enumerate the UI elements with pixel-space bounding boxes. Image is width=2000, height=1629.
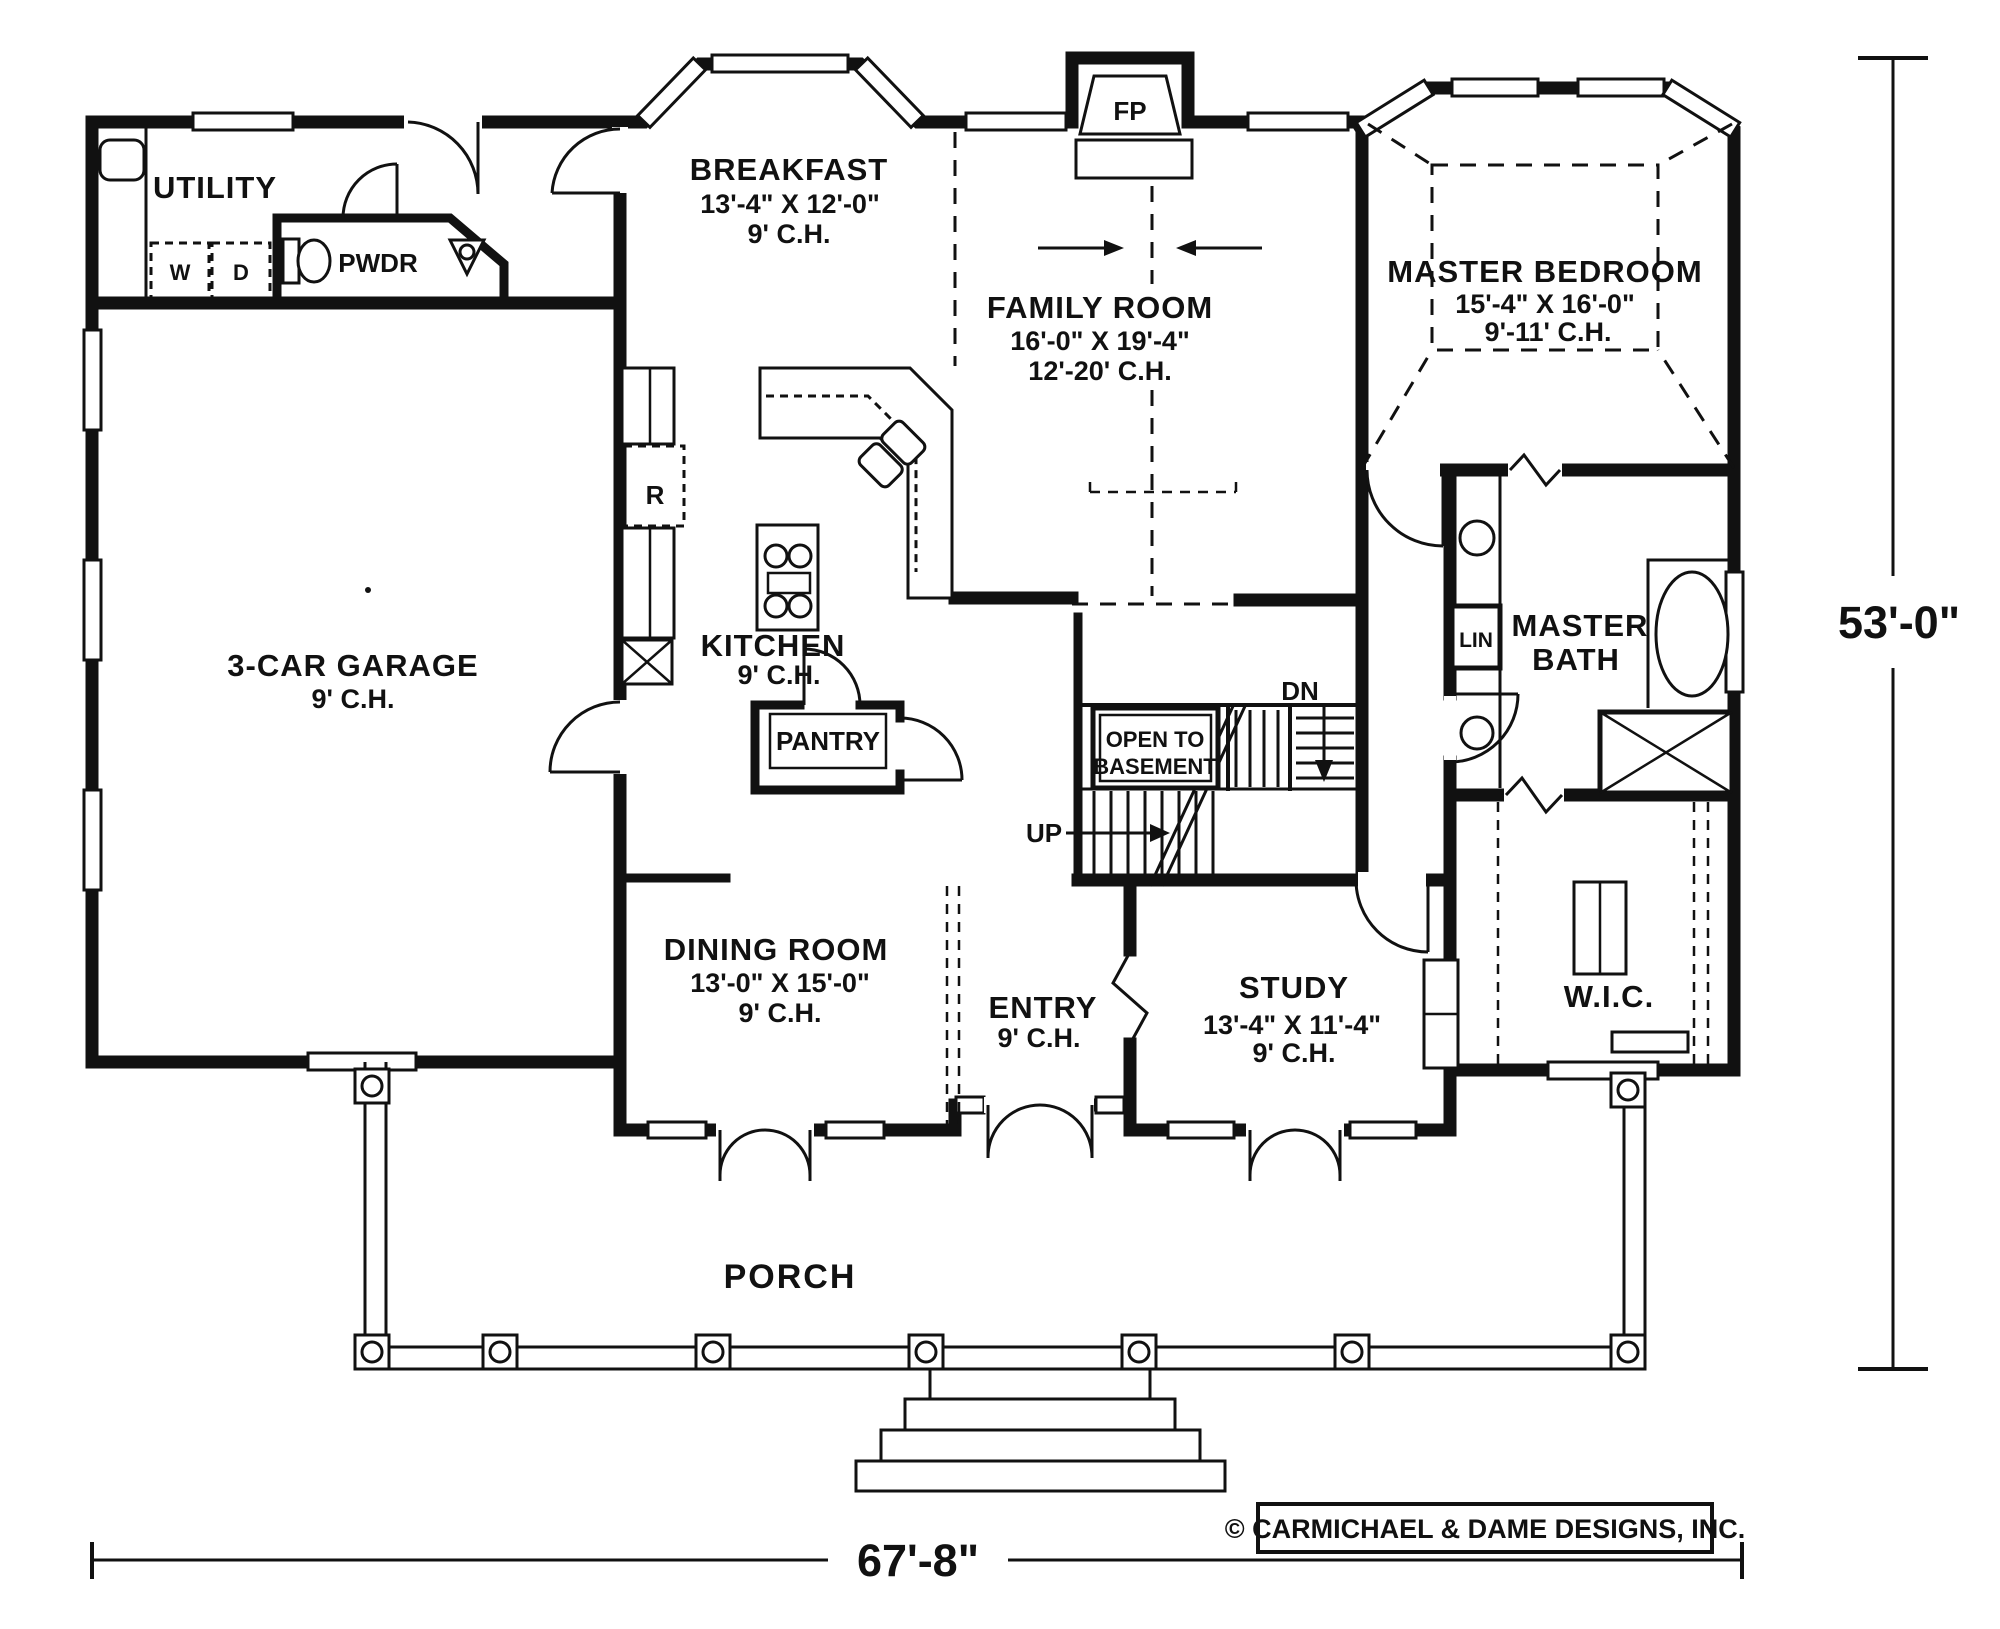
laundry-sink [100, 140, 144, 180]
dining-room-label: DINING ROOM [664, 932, 889, 967]
floor-plan-page: FP [0, 0, 2000, 1629]
window [1248, 113, 1348, 130]
open-to-basement-label: OPEN TO [1106, 727, 1205, 752]
door-garage [550, 702, 620, 772]
ceiling-slope-arrows [1038, 240, 1262, 256]
garage-ceiling: 9' C.H. [312, 684, 395, 714]
window [1663, 80, 1740, 137]
ceiling-break-dashed [1090, 478, 1236, 492]
door-hall [900, 718, 962, 780]
window [826, 1122, 884, 1138]
family-room-size: 16'-0" X 19'-4" [1010, 326, 1190, 356]
stair-treads-basement [1236, 710, 1278, 787]
floor-plan-drawing: FP [0, 0, 2000, 1629]
door-opening [800, 697, 860, 713]
wic-bench [1612, 1032, 1688, 1052]
breakfast-size: 13'-4" X 12'-0" [700, 189, 880, 219]
kitchen-ceiling: 9' C.H. [738, 660, 821, 690]
window [1356, 80, 1433, 137]
up-arrow-head [1150, 824, 1170, 842]
entry-label: ENTRY [989, 990, 1098, 1025]
utility-label: UTILITY [153, 170, 277, 205]
family-room-ceiling: 12'-20' C.H. [1028, 356, 1171, 386]
porch-post [696, 1335, 730, 1369]
window [966, 113, 1066, 130]
family-room-label: FAMILY ROOM [987, 290, 1213, 325]
overall-depth-label: 53'-0" [1838, 597, 1960, 648]
dining-room-size: 13'-0" X 15'-0" [690, 968, 870, 998]
window [712, 55, 848, 72]
window [855, 58, 923, 127]
study-ceiling: 9' C.H. [1253, 1038, 1336, 1068]
porch-post [909, 1335, 943, 1369]
bath-fixtures: LIN [1452, 472, 1734, 1064]
breakfast-ceiling: 9' C.H. [748, 219, 831, 249]
fireplace: FP [1076, 76, 1192, 178]
porch-post [355, 1069, 389, 1103]
step [905, 1399, 1175, 1430]
dining-room-ceiling: 9' C.H. [739, 998, 822, 1028]
window [638, 58, 706, 127]
study-fixtures [1424, 960, 1458, 1068]
window [84, 560, 101, 660]
porch-post [1122, 1335, 1156, 1369]
porch-post [1335, 1335, 1369, 1369]
door-opening [1358, 872, 1426, 888]
door-opening [612, 127, 628, 193]
garage-label: 3-CAR GARAGE [227, 648, 478, 683]
wic-label: W.I.C. [1564, 979, 1654, 1014]
window [1168, 1122, 1234, 1138]
kitchen-label: KITCHEN [701, 628, 846, 663]
copyright-block: © CARMICHAEL & DAME DESIGNS, INC. [1225, 1504, 1745, 1552]
copyright-label: © CARMICHAEL & DAME DESIGNS, INC. [1225, 1514, 1745, 1544]
down-label: DN [1281, 676, 1319, 706]
counter [622, 368, 674, 444]
overall-width-label: 67'-8" [857, 1535, 979, 1586]
door-opening [1444, 696, 1456, 760]
window-sidelight [1096, 1097, 1124, 1113]
slope-arrow-head [1104, 240, 1124, 256]
porch-post [355, 1335, 389, 1369]
hearth [1076, 140, 1192, 178]
porch-post [483, 1335, 517, 1369]
tub [1656, 572, 1728, 696]
washer-label: W [170, 260, 191, 285]
powder-label: PWDR [338, 248, 418, 278]
study-label: STUDY [1239, 970, 1349, 1005]
window [1452, 79, 1538, 96]
door-opening [612, 700, 628, 774]
master-bedroom-label: MASTER BEDROOM [1387, 254, 1702, 289]
door-utility-breakfast [552, 129, 620, 193]
window [648, 1122, 706, 1138]
step [856, 1461, 1225, 1491]
window [308, 1053, 416, 1070]
door-opening [1366, 462, 1440, 478]
step [930, 1369, 1150, 1399]
master-bedroom-size: 15'-4" X 16'-0" [1455, 289, 1635, 319]
window [1578, 79, 1664, 96]
toilet [298, 240, 330, 282]
master-bedroom-ceiling: 9'-11' C.H. [1485, 317, 1612, 347]
porch-post [1611, 1073, 1645, 1107]
slope-arrow-head [1176, 240, 1196, 256]
window [193, 113, 293, 130]
door-study [1356, 880, 1428, 952]
porch-post [1611, 1335, 1645, 1369]
sink [1460, 521, 1494, 555]
counter [622, 528, 674, 638]
dryer-label: D [233, 260, 249, 285]
open-to-basement-label: BASEMENT [1093, 754, 1217, 779]
linen-label: LIN [1459, 629, 1493, 652]
entry-ceiling: 9' C.H. [998, 1023, 1081, 1053]
porch-label: PORCH [724, 1258, 857, 1296]
opening-entry-study [1113, 952, 1147, 1044]
powder-sink-bowl [460, 245, 474, 259]
door-master-bedroom [1367, 470, 1443, 546]
refrigerator-label: R [646, 480, 665, 510]
pantry-label: PANTRY [776, 726, 880, 756]
toilet [1461, 717, 1493, 749]
column-line-dashed [947, 886, 959, 1124]
study-size: 13'-4" X 11'-4" [1203, 1010, 1381, 1040]
master-bath-label: BATH [1532, 642, 1620, 677]
door-powder [343, 164, 397, 218]
breakfast-label: BREAKFAST [690, 152, 888, 187]
plan-dot [365, 587, 371, 593]
door-back [408, 122, 478, 194]
step [881, 1430, 1200, 1461]
fireplace-label: FP [1113, 96, 1146, 126]
front-steps [856, 1369, 1225, 1491]
window [84, 790, 101, 890]
window [84, 330, 101, 430]
window [1350, 1122, 1416, 1138]
up-label: UP [1026, 818, 1062, 848]
master-bath-label: MASTER [1512, 608, 1649, 643]
